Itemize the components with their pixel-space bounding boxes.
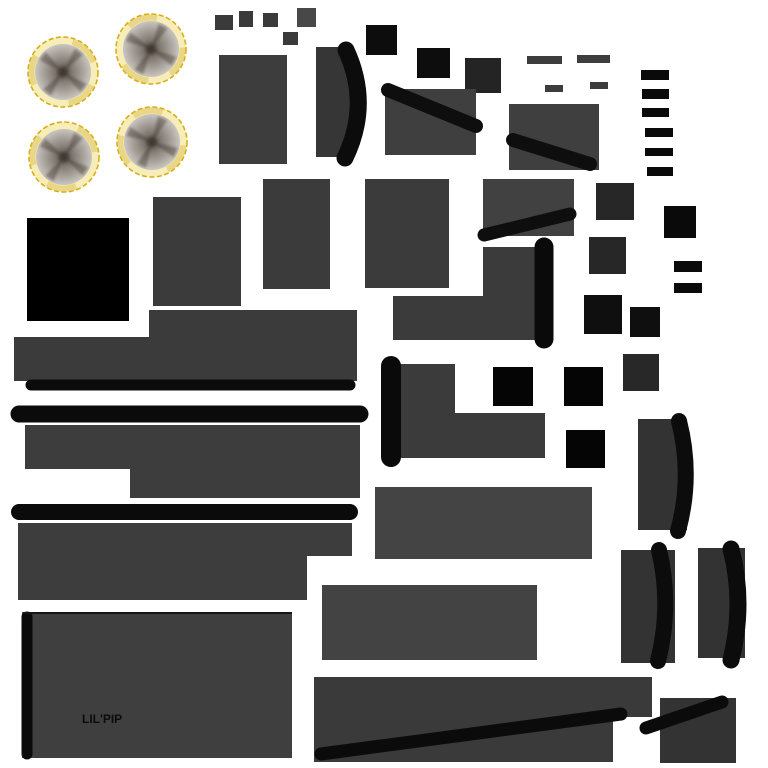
panel-i1 (153, 197, 241, 306)
wheel-texture (116, 14, 186, 84)
thin-bar-4 (590, 82, 608, 89)
vent-bar-2 (642, 89, 669, 99)
wheel-texture (108, 98, 196, 186)
texture-atlas (0, 0, 768, 768)
texture-atlas-canvas: LIL'PIP (0, 0, 768, 768)
thin-bar-1 (527, 56, 562, 64)
panel-v (322, 585, 537, 660)
wheel-texture (21, 30, 105, 114)
panel-y (22, 612, 292, 758)
dark-square-c3 (465, 58, 501, 93)
chip-square-3 (263, 13, 278, 27)
vent-bar-3 (642, 108, 669, 117)
black-square-l4 (630, 307, 660, 337)
crescent-x1-band (678, 421, 686, 531)
panel-i2 (263, 179, 330, 289)
vent-bar-1 (641, 70, 669, 80)
dark-square-l1 (596, 183, 634, 220)
wheel-hub (147, 137, 158, 148)
panel-u (375, 487, 592, 559)
chip-square-2 (239, 11, 253, 27)
panel-a (219, 55, 287, 164)
panel-i3 (365, 179, 449, 288)
big-black-square (27, 218, 129, 321)
small-bar-r1 (674, 261, 702, 272)
black-square-m2 (564, 367, 603, 406)
small-bar-r2 (674, 283, 702, 293)
step-panel-p (25, 425, 360, 498)
thin-bar-2 (577, 55, 610, 63)
black-square-m3 (566, 430, 605, 468)
black-square-m1 (493, 367, 533, 406)
thin-bar-3 (545, 85, 563, 92)
vent-bar-4 (645, 128, 673, 137)
chip-square-5 (283, 32, 298, 45)
crescent-x3-band (731, 549, 738, 660)
dark-square-l2 (589, 237, 626, 274)
step-panel-r (18, 523, 352, 600)
wheel-hub (59, 152, 70, 163)
black-square-l3 (584, 295, 622, 334)
atlas-label: LIL'PIP (82, 713, 122, 725)
dark-square-l5 (623, 354, 659, 391)
wheel-hub (146, 44, 157, 55)
chip-square-1 (215, 15, 233, 30)
black-square-c2 (417, 48, 450, 78)
black-square-f (664, 206, 696, 238)
wheel-hub (58, 67, 69, 78)
wheel-layer (21, 14, 196, 196)
vent-bar-5 (645, 148, 673, 156)
chip-square-4 (297, 8, 316, 27)
wheel-texture (25, 118, 102, 195)
black-square-c1 (366, 25, 397, 55)
crescent-x2-band (658, 550, 665, 661)
vent-bar-6 (647, 167, 673, 176)
